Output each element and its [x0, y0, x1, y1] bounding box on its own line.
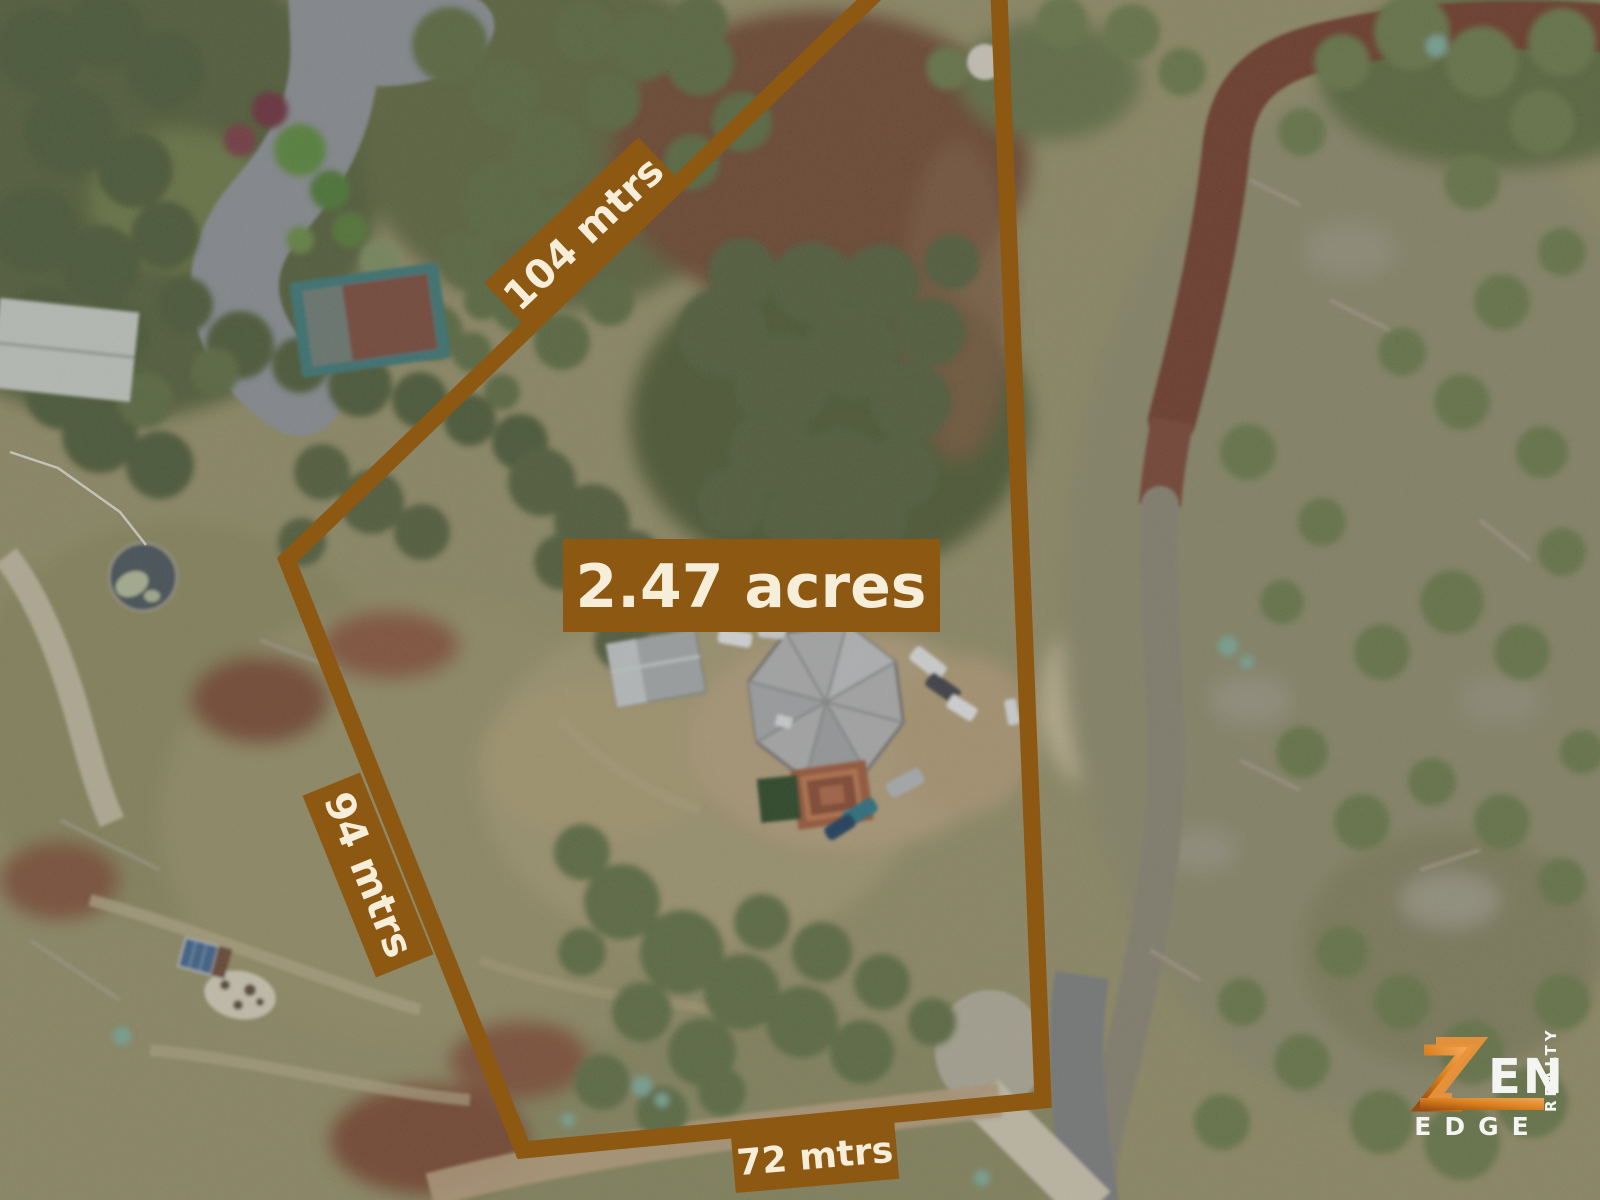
aerial-photo-canvas: 104 mtrs 94 mtrs 72 mtrs 2.47 acres EN R…: [0, 0, 1600, 1200]
area-badge-text: 2.47 acres: [576, 552, 927, 622]
area-badge: 2.47 acres: [563, 539, 940, 632]
realty-tagline: REALTY: [1542, 1026, 1560, 1112]
aerial-photo: 104 mtrs 94 mtrs 72 mtrs 2.47 acres EN R…: [0, 0, 1600, 1200]
edge-word: EDGE: [1414, 1112, 1541, 1141]
